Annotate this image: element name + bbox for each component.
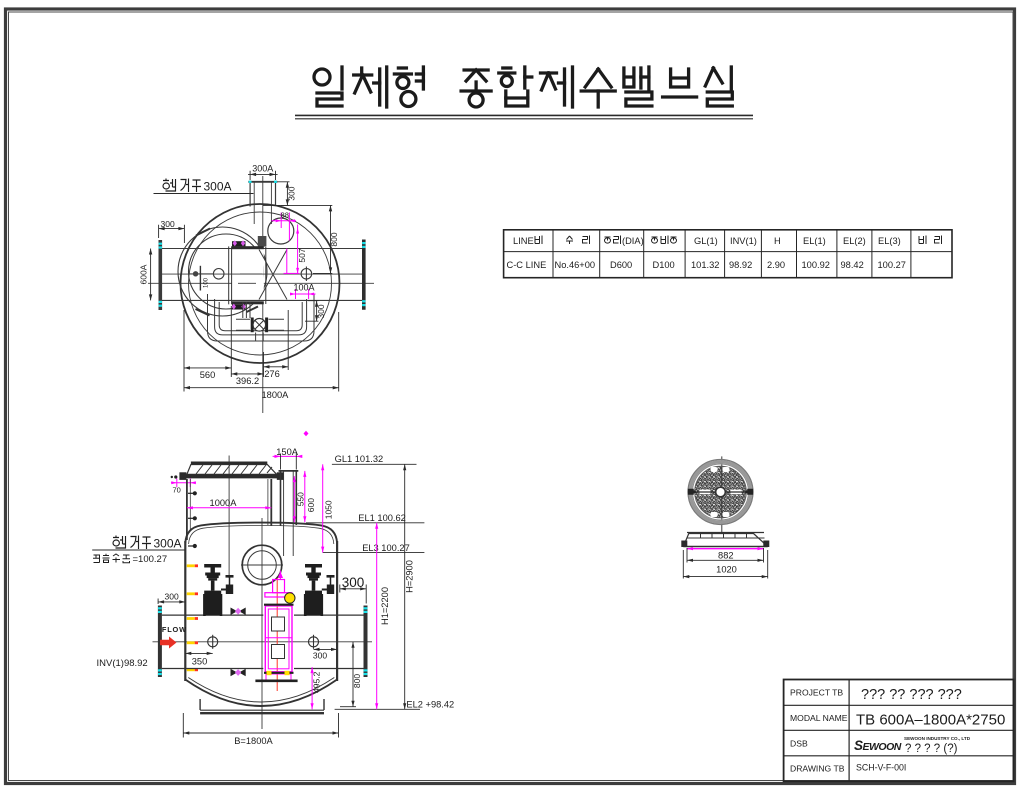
svg-text:495.2: 495.2 (312, 671, 322, 693)
svg-text:600: 600 (306, 498, 316, 512)
svg-text:600A: 600A (139, 264, 149, 284)
svg-text:396.2: 396.2 (236, 376, 259, 386)
svg-text:FLOW: FLOW (162, 625, 187, 634)
svg-text:EL(2): EL(2) (843, 236, 866, 246)
svg-text:300: 300 (165, 591, 179, 601)
svg-text:PROJECT TB: PROJECT TB (790, 688, 843, 698)
svg-text:MODAL NAME: MODAL NAME (790, 713, 848, 723)
svg-text:EL3 100.27: EL3 100.27 (362, 543, 410, 553)
svg-text:300: 300 (313, 651, 327, 661)
svg-text:EL(1): EL(1) (803, 236, 826, 246)
svg-text:SCH-V-F-00I: SCH-V-F-00I (856, 763, 906, 773)
svg-text:INV(1)98.92: INV(1)98.92 (97, 658, 148, 669)
svg-text:D100: D100 (653, 260, 675, 270)
svg-text:(DIA): (DIA) (622, 236, 644, 246)
svg-text:LINE: LINE (513, 236, 534, 246)
svg-text:300: 300 (342, 575, 365, 590)
svg-text:DRAWING TB: DRAWING TB (790, 764, 845, 774)
svg-text:DSB: DSB (790, 739, 808, 749)
svg-text:GL1 101.32: GL1 101.32 (335, 454, 384, 464)
svg-text:882: 882 (718, 551, 734, 561)
svg-text:560: 560 (200, 370, 216, 380)
svg-text:GL(1): GL(1) (694, 236, 718, 246)
svg-text:300: 300 (287, 186, 297, 200)
svg-text:1050: 1050 (324, 500, 334, 519)
svg-text:2.90: 2.90 (767, 260, 785, 270)
svg-text:1000A: 1000A (210, 498, 238, 508)
svg-text:INV(1): INV(1) (730, 236, 757, 246)
svg-text:150A: 150A (276, 447, 299, 457)
svg-text:100: 100 (204, 277, 210, 288)
svg-text:TB 600A–1800A*2750: TB 600A–1800A*2750 (856, 712, 1005, 729)
svg-text:350: 350 (192, 657, 208, 667)
svg-text:300: 300 (161, 219, 175, 229)
svg-text:H=2900: H=2900 (405, 560, 415, 593)
svg-text:=100.27: =100.27 (133, 554, 168, 565)
svg-text:1020: 1020 (716, 564, 737, 574)
svg-text:No.46+00: No.46+00 (555, 260, 596, 270)
svg-text:800: 800 (352, 674, 362, 688)
svg-text:98.42: 98.42 (841, 260, 864, 270)
svg-text:EL(3): EL(3) (878, 236, 901, 246)
svg-text:88: 88 (281, 211, 289, 220)
svg-text:300A: 300A (252, 163, 273, 173)
svg-text:? ? ? ? (?): ? ? ? ? (?) (905, 743, 958, 755)
svg-text:98.92: 98.92 (729, 260, 752, 270)
svg-text:100.27: 100.27 (878, 260, 906, 270)
svg-text:??? ?? ??? ???: ??? ?? ??? ??? (861, 687, 962, 703)
svg-text:EL2 +98.42: EL2 +98.42 (406, 700, 454, 710)
svg-text:H1=2200: H1=2200 (380, 587, 390, 625)
svg-text:70: 70 (173, 485, 181, 494)
svg-text:100.92: 100.92 (802, 260, 830, 270)
svg-text:D600: D600 (610, 260, 632, 270)
svg-text:300: 300 (316, 304, 326, 318)
svg-text:1800A: 1800A (262, 390, 290, 400)
svg-text:507: 507 (297, 248, 307, 262)
svg-text:800: 800 (329, 232, 339, 246)
svg-text:C-C LINE: C-C LINE (507, 260, 547, 270)
svg-text:300A: 300A (204, 180, 232, 194)
svg-text:300A: 300A (154, 537, 182, 551)
svg-text:101.32: 101.32 (691, 260, 719, 270)
svg-text:276: 276 (264, 369, 280, 379)
svg-text:SEWOON INDUSTRY CO., LTD: SEWOON INDUSTRY CO., LTD (904, 736, 971, 741)
svg-text:550: 550 (296, 492, 306, 506)
svg-text:EL1 100.62: EL1 100.62 (358, 513, 406, 523)
svg-text:100A: 100A (293, 283, 314, 293)
svg-text:SEWOON: SEWOON (854, 738, 902, 753)
svg-text:H: H (774, 236, 781, 246)
svg-text:B=1800A: B=1800A (234, 736, 273, 746)
